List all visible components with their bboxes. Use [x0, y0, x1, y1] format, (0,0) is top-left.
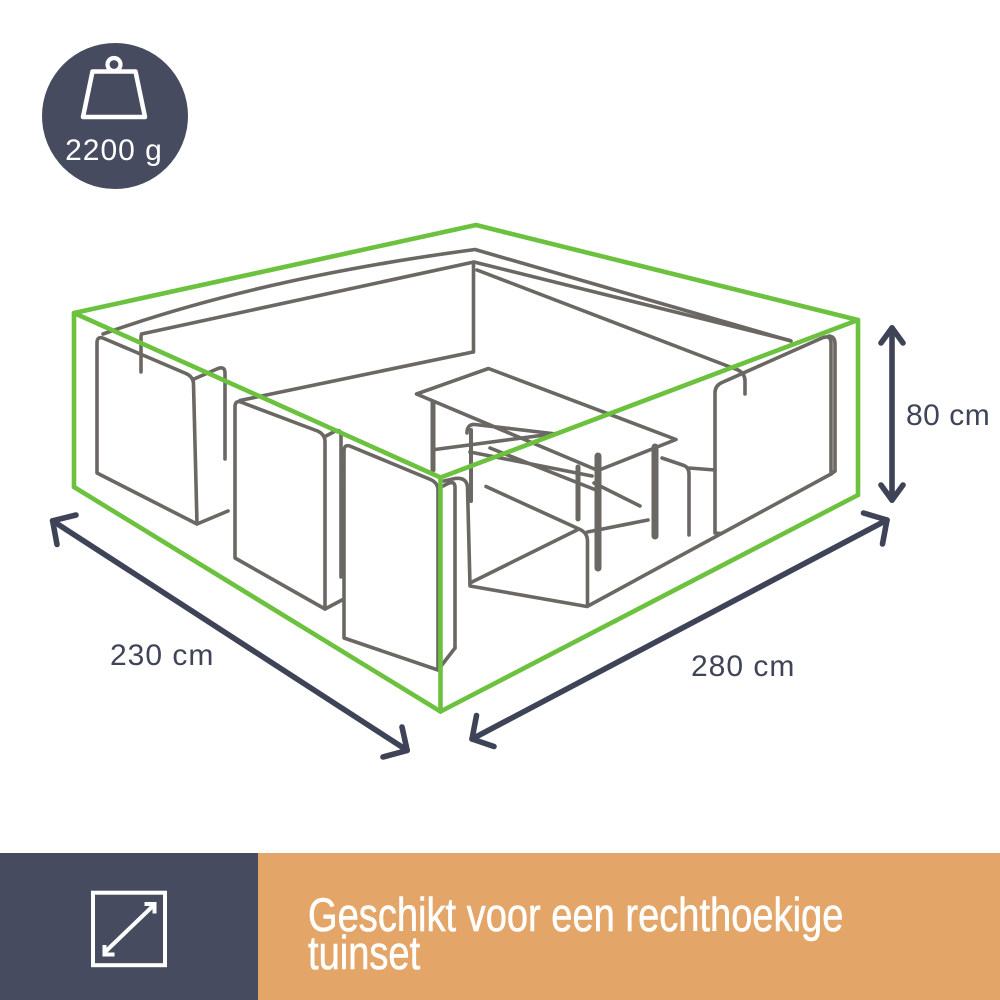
svg-text:2200 g: 2200 g	[65, 134, 163, 167]
